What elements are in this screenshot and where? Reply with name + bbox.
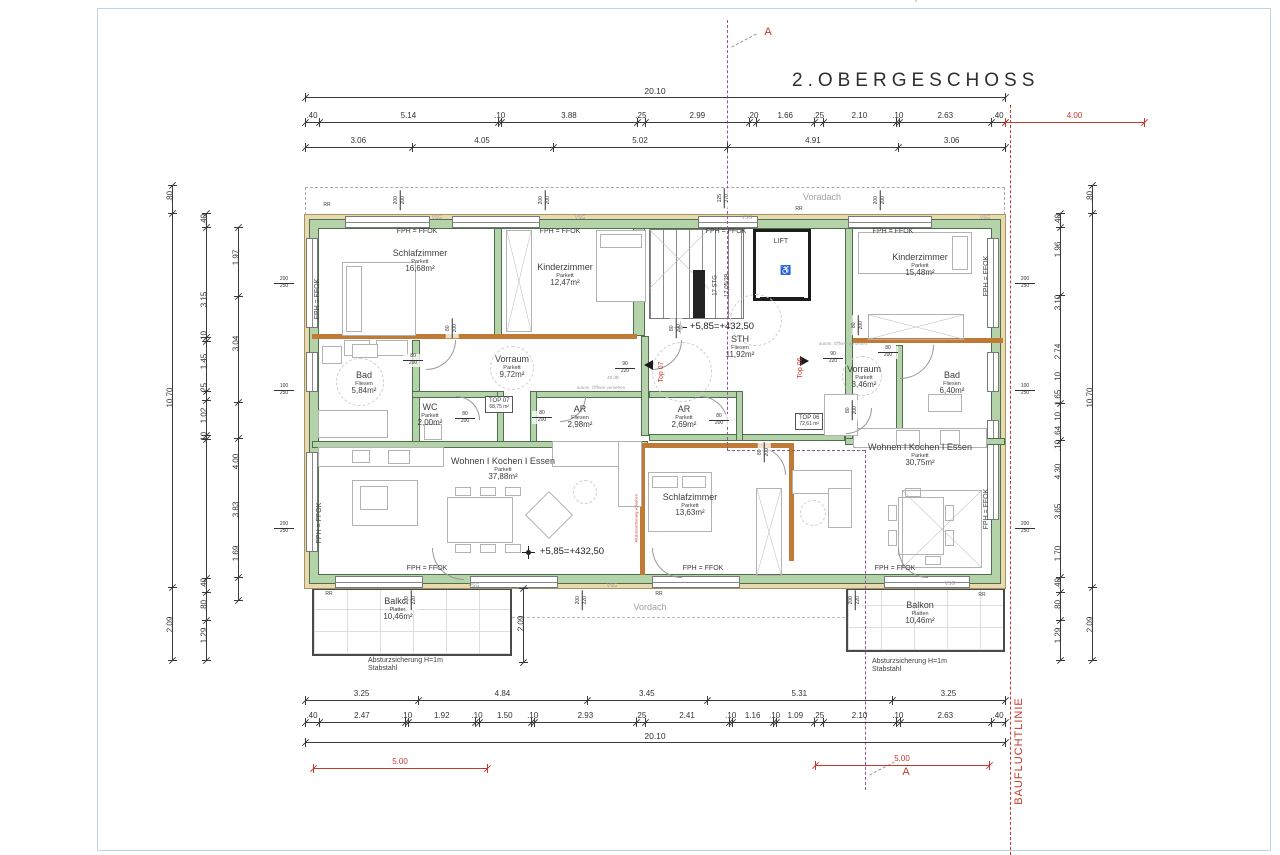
size-denominator: 200: [859, 315, 865, 335]
room-area: 10,46m²: [328, 613, 468, 622]
interior-wall: [536, 391, 642, 398]
size-fraction: 200200: [394, 190, 407, 210]
annotation: Vordach: [580, 602, 720, 612]
annotation: RR: [259, 592, 399, 598]
sofa: [828, 488, 852, 528]
red-annotation: Absturzsicherung vorsehen: [635, 448, 640, 588]
room-label: Wohnen I Kochen I EssenParkett30,75m²: [850, 443, 990, 468]
kitchen-stove: [388, 450, 410, 464]
dim-ext: [313, 764, 314, 773]
coffee-table: [573, 480, 597, 504]
dim-ext: [1005, 118, 1006, 127]
dim-label: 2.99: [667, 111, 727, 120]
room-area: 30,75m²: [850, 459, 990, 468]
size-fraction: 200220: [576, 590, 589, 610]
room-name: Balkon: [328, 597, 468, 607]
staircase-spine: [693, 270, 705, 318]
dim-label: 2.63: [915, 111, 975, 120]
dim-ext: [815, 761, 816, 770]
room-area: 2,00m²: [360, 419, 500, 428]
dim-label: 20.10: [625, 731, 685, 741]
room-name: Schlafzimmer: [350, 249, 490, 259]
room-area: 2,69m²: [614, 421, 754, 430]
size-fraction: 100250: [1015, 384, 1035, 397]
size-fraction: 80200: [403, 354, 423, 367]
size-fraction: 200220: [849, 590, 862, 610]
room-area: 37,88m²: [433, 473, 573, 482]
annotation: FPH = FFOK: [490, 228, 630, 236]
annotation: FPH = FFOK: [357, 565, 497, 573]
dim-label: 3.04: [232, 314, 241, 374]
washbasin: [928, 394, 962, 412]
dim-ext: [900, 718, 901, 727]
room-label: STHFliesen11,92m²: [670, 335, 810, 360]
dim-ext: [1005, 696, 1006, 705]
dim-label: .25: [611, 111, 671, 120]
room-name: Wohnen I Kochen I Essen: [433, 457, 573, 467]
bed-pillow: [346, 266, 362, 332]
room-area: 12,47m²: [495, 279, 635, 288]
unit-area: 68,75 m²: [489, 405, 509, 411]
dim-label: .10: [470, 111, 530, 120]
annotation: RR: [257, 203, 397, 209]
dim-ext: [408, 718, 409, 727]
room-name: WC: [360, 403, 500, 413]
annotation: Absturzsicherung H=1m Stabstahl: [368, 657, 443, 673]
size-fraction: 200200: [539, 190, 552, 210]
annotation: LIFT: [711, 238, 851, 246]
annotation: Absturzsicherung H=1m Stabstahl: [872, 658, 947, 674]
dim-label: 3.25: [332, 689, 392, 698]
dim-ext: [519, 588, 528, 589]
size-denominator: 200: [878, 353, 898, 359]
dim-label: .10: [503, 711, 563, 720]
room-label: KinderzimmerParkett15,48m²: [850, 253, 990, 278]
annotation: VSG: [510, 216, 650, 222]
size-fraction: 125270: [718, 188, 731, 208]
dim-label: 2.09: [1086, 595, 1095, 655]
size-fraction: 200220: [405, 590, 418, 610]
red-annotation: Top 07: [658, 302, 666, 442]
room-name: Wohnen I Kochen I Essen: [850, 443, 990, 453]
red-dim-line: [1005, 122, 1144, 123]
room-label: BalkonPlatten10,46m²: [850, 601, 990, 626]
dim-label: 3.45: [617, 689, 677, 698]
annotation: autom. Öffnen vorsehen: [531, 385, 671, 390]
dim-ext: [1005, 738, 1006, 747]
dim-ext: [1088, 660, 1097, 661]
dim-ext: [553, 143, 554, 152]
dim-label: 1.96: [1054, 220, 1063, 280]
size-denominator: 220: [615, 369, 635, 375]
dim-label: 2.09: [166, 595, 175, 655]
dim-ext: [234, 402, 243, 403]
dim-ext: [305, 143, 306, 152]
wardrobe: [868, 314, 964, 340]
red-dim-label: 5.00: [872, 754, 932, 763]
chair: [888, 505, 897, 521]
size-denominator: 200: [403, 361, 423, 367]
dim-ext: [587, 696, 588, 705]
dim-ext: [319, 718, 320, 727]
size-denominator: 250: [1015, 529, 1035, 535]
annotation: VSG: [915, 216, 1055, 222]
dim-ext: [645, 718, 646, 727]
dim-ext: [519, 662, 528, 663]
room-label: SchlafzimmerParkett16,68m²: [350, 249, 490, 274]
unit-label-box: TOP 0768,75 m²: [485, 396, 513, 413]
room-name: Vorraum: [442, 355, 582, 365]
room-area: 10,46m²: [850, 617, 990, 626]
annotation: 17,05/29: [725, 215, 732, 355]
annotation: ♿: [716, 265, 856, 275]
size-denominator: 250: [1015, 391, 1035, 397]
room-label: SchlafzimmerParkett13,63m²: [620, 493, 760, 518]
size-denominator: 220: [583, 590, 589, 610]
section-line: [727, 450, 865, 451]
dim-label: .40: [282, 111, 342, 120]
size-denominator: 250: [274, 529, 294, 535]
dim-ext: [823, 118, 824, 127]
dim-ext: [1005, 718, 1006, 727]
dim-label: 2.63: [915, 711, 975, 720]
dim-label: 4.05: [452, 136, 512, 145]
dim-ext: [1088, 587, 1097, 588]
size-denominator: 250: [274, 284, 294, 290]
dim-ext: [168, 587, 177, 588]
dim-ext: [418, 696, 419, 705]
dim-ext: [899, 118, 900, 127]
dim-ext: [168, 660, 177, 661]
toilet: [322, 346, 342, 364]
dim-ext: [534, 718, 535, 727]
annotation: FPH = FFOK: [347, 228, 487, 236]
unit-entry-arrow: [644, 360, 653, 370]
size-denominator: 200: [401, 190, 407, 210]
size-denominator: 270: [725, 188, 731, 208]
size-fraction: 80200: [758, 442, 771, 462]
building-line-label: BAUFLUCHTLINIE: [1013, 671, 1025, 831]
dim-label: 5.31: [769, 689, 829, 698]
annotation: FPH = FFOK: [983, 439, 991, 579]
annotation: FPH = FFOK: [316, 453, 324, 593]
size-denominator: 200: [765, 442, 771, 462]
dim-ext: [305, 738, 306, 747]
annotation: FPH = FFOK: [314, 229, 322, 369]
size-denominator: 200: [453, 318, 459, 338]
canopy-outline-top: [305, 187, 1005, 188]
canopy-outline-right: [1004, 187, 1005, 215]
size-fraction: 100250: [274, 384, 294, 397]
interior-wall: [649, 434, 845, 441]
room-area: 11,92m²: [670, 351, 810, 360]
size-fraction: 80200: [846, 400, 859, 420]
size-denominator: 200: [455, 419, 475, 425]
dim-ext: [234, 296, 243, 297]
room-area: 13,63m²: [620, 509, 760, 518]
size-fraction: 200200: [874, 190, 887, 210]
room-label: BadFliesen5,84m²: [294, 371, 434, 396]
chair: [505, 487, 521, 496]
bed-pillow: [652, 476, 678, 488]
size-fraction: 80200: [446, 318, 459, 338]
floor-plan-sheet: 2.OBERGESCHOSS: [0, 0, 1280, 855]
dim-label: .40: [968, 111, 1028, 120]
room-name: AR: [614, 405, 754, 415]
size-denominator: 200: [709, 421, 729, 427]
chair: [480, 487, 496, 496]
dim-label: 3.06: [922, 136, 982, 145]
level-marker: +5,85=+432,50: [512, 546, 632, 557]
red-dim-line: [815, 765, 989, 766]
page-title: 2.OBERGESCHOSS: [792, 70, 1039, 92]
bed-pillow: [682, 476, 706, 488]
dim-label: 2.09: [517, 594, 526, 654]
dim-ext: [898, 143, 899, 152]
size-fraction: 200250: [274, 277, 294, 290]
dim-ext: [1005, 93, 1006, 102]
interior-wall-brown: [644, 443, 794, 448]
size-fraction: 200250: [274, 522, 294, 535]
dim-label: 1.69: [232, 524, 241, 584]
section-letter: A: [836, 766, 976, 779]
dim-label: .80: [166, 167, 175, 227]
room-name: Bad: [294, 371, 434, 381]
room-name: Balkon: [850, 601, 990, 611]
dim-ext: [319, 118, 320, 127]
dim-ext: [305, 696, 306, 705]
dim-ext: [305, 93, 306, 102]
size-fraction: 80200: [878, 346, 898, 359]
size-denominator: 220: [856, 590, 862, 610]
section-letter: A: [698, 26, 838, 39]
room-name: Schlafzimmer: [620, 493, 760, 503]
room-name: Kinderzimmer: [850, 253, 990, 263]
size-fraction: 90220: [615, 362, 635, 375]
size-fraction: 80200: [455, 412, 475, 425]
room-label: BalkonPlatten10,46m²: [328, 597, 468, 622]
kitchen-sink: [352, 450, 370, 463]
annotation: 17 STG: [713, 215, 720, 355]
red-dim-label: 5.00: [370, 757, 430, 766]
annotation: VSG: [677, 216, 817, 222]
room-area: 5,84m²: [294, 387, 434, 396]
red-annotation: Top 06: [797, 298, 805, 438]
room-label: ARParkett2,69m²: [614, 405, 754, 430]
annotation: FPH = FFOK: [633, 565, 773, 573]
room-area: 6,40m²: [882, 387, 1022, 396]
dim-label: 4.91: [783, 136, 843, 145]
room-area: 15,48m²: [850, 269, 990, 278]
room-label: Wohnen I Kochen I EssenParkett37,88m²: [433, 457, 573, 482]
annotation: VSG: [880, 582, 1020, 588]
room-name: Kinderzimmer: [495, 263, 635, 273]
room-area: 16,68m²: [350, 265, 490, 274]
dim-label: .40: [200, 190, 209, 250]
dim-label: .80: [1086, 167, 1095, 227]
dining-table: [447, 497, 513, 543]
size-denominator: 250: [1015, 284, 1035, 290]
interior-wall-brown: [789, 443, 794, 561]
dim-ext: [1144, 118, 1145, 127]
dim-label: 20.10: [625, 86, 685, 96]
dim-label: 5.02: [610, 136, 670, 145]
dim-label: 1.29: [1054, 606, 1063, 666]
dim-label: .40: [968, 711, 1028, 720]
dim-label: 3.88: [539, 111, 599, 120]
size-fraction: 90220: [823, 352, 843, 365]
size-denominator: 220: [823, 359, 843, 365]
dim-label: 5.14: [378, 111, 438, 120]
dim-ext: [645, 118, 646, 127]
annotation: RR: [912, 593, 1052, 599]
red-dim-label: 4.00: [1045, 111, 1105, 120]
chair: [480, 544, 496, 553]
clearance-circle: [915, 0, 917, 2]
dim-label: 10.70: [1086, 368, 1095, 428]
size-denominator: 200: [881, 190, 887, 210]
annotation: FPH = FFOK: [983, 206, 991, 346]
washbasin: [352, 344, 378, 358]
dim-ext: [989, 761, 990, 770]
red-dim-line: [313, 768, 487, 769]
size-denominator: 200: [677, 318, 683, 338]
size-denominator: 200: [546, 190, 552, 210]
size-fraction: 200250: [1015, 522, 1035, 535]
size-denominator: 200: [853, 400, 859, 420]
annotation: VSG: [367, 216, 507, 222]
dim-ext: [412, 143, 413, 152]
room-name: Bad: [882, 371, 1022, 381]
dim-label: .10: [200, 408, 209, 468]
size-fraction: 80200: [532, 411, 552, 424]
dim-line: [305, 700, 1005, 701]
canopy-outline-left: [305, 187, 306, 215]
annotation: RR: [729, 207, 869, 213]
annotation: Voradach: [752, 192, 892, 202]
dim-label: 4.84: [472, 689, 532, 698]
room-label: WCParkett2,00m²: [360, 403, 500, 428]
dim-line: [305, 97, 1005, 98]
dim-ext: [823, 718, 824, 727]
dim-ext: [501, 118, 502, 127]
dim-ext: [234, 600, 243, 601]
chair: [455, 487, 471, 496]
size-fraction: 80200: [852, 315, 865, 335]
size-denominator: 250: [274, 391, 294, 397]
annotation: FPH = FFOK: [825, 565, 965, 573]
annotation: FPH = FFOK: [823, 228, 963, 236]
annotation: VSG: [542, 584, 682, 590]
dim-label: 1.97: [232, 228, 241, 288]
room-label: BadFliesen6,40m²: [882, 371, 1022, 396]
size-fraction: 80200: [709, 414, 729, 427]
dim-ext: [707, 696, 708, 705]
dim-label: 3.06: [328, 136, 388, 145]
chair: [888, 530, 897, 546]
annotation: RR: [589, 592, 729, 598]
kitchen-counter: [318, 447, 444, 467]
dim-label: 2.93: [555, 711, 615, 720]
size-denominator: 200: [532, 418, 552, 424]
size-fraction: 200250: [1015, 277, 1035, 290]
dim-ext: [487, 764, 488, 773]
coffee-table: [800, 500, 826, 526]
dim-line: [305, 742, 1005, 743]
dim-label: 10.70: [166, 368, 175, 428]
dim-label: 1.29: [200, 606, 209, 666]
size-fraction: 80200: [670, 318, 683, 338]
room-label: KinderzimmerParkett12,47m²: [495, 263, 635, 288]
cooktop: [360, 486, 388, 510]
dim-ext: [892, 696, 893, 705]
dim-label: 3.25: [918, 689, 978, 698]
dim-ext: [727, 143, 728, 152]
size-denominator: 220: [412, 590, 418, 610]
dim-ext: [1005, 143, 1006, 152]
